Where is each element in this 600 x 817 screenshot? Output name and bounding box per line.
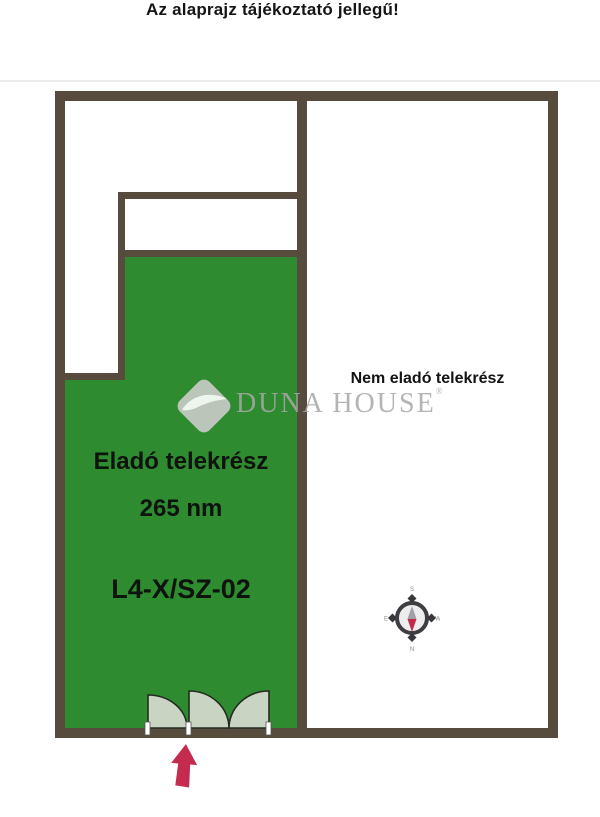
label-for-sale: Eladó telekrész (65, 448, 297, 476)
label-plot-code: L4-X/SZ-02 (65, 574, 297, 605)
wall-green-top-border (125, 250, 304, 257)
gate-hinge-mark (186, 722, 191, 735)
wall-outer-right (548, 91, 558, 738)
gate-hinge-mark (266, 722, 271, 735)
sale-area-labels: Eladó telekrész 265 nm L4-X/SZ-02 (65, 448, 297, 605)
gate-hinge-mark (145, 722, 150, 735)
compass-letter-top: S (410, 587, 414, 593)
label-plot-size: 265 nm (65, 495, 297, 523)
wall-outer-left (55, 91, 65, 738)
logo-text: DUNA HOUSE® (236, 386, 443, 420)
compass-letter-left: E (384, 617, 388, 623)
compass-letter-right: W (435, 617, 440, 623)
gate-single-icon (148, 695, 187, 728)
label-not-for-sale: Nem eladó telekrész (307, 370, 548, 388)
logo-brand-text: DUNA HOUSE (236, 388, 436, 419)
disclaimer-title: Az alaprajz tájékoztató jellegű! (0, 0, 545, 20)
entrance-arrow-icon (161, 739, 207, 792)
divider-line (0, 80, 600, 82)
compass-icon: S N E W (384, 582, 440, 654)
wall-inner-vertical (118, 192, 125, 380)
gate-symbols (138, 684, 278, 740)
wall-inner-box-top (118, 192, 307, 199)
gate-double-right-icon (229, 691, 269, 728)
compass-letter-bottom: N (410, 647, 414, 653)
logo-diamond-icon (170, 378, 238, 436)
plot-plan-page: Az alaprajz tájékoztató jellegű! DUNA HO… (0, 0, 600, 817)
gate-double-left-icon (189, 691, 229, 728)
wall-notch-bottom (60, 373, 125, 380)
